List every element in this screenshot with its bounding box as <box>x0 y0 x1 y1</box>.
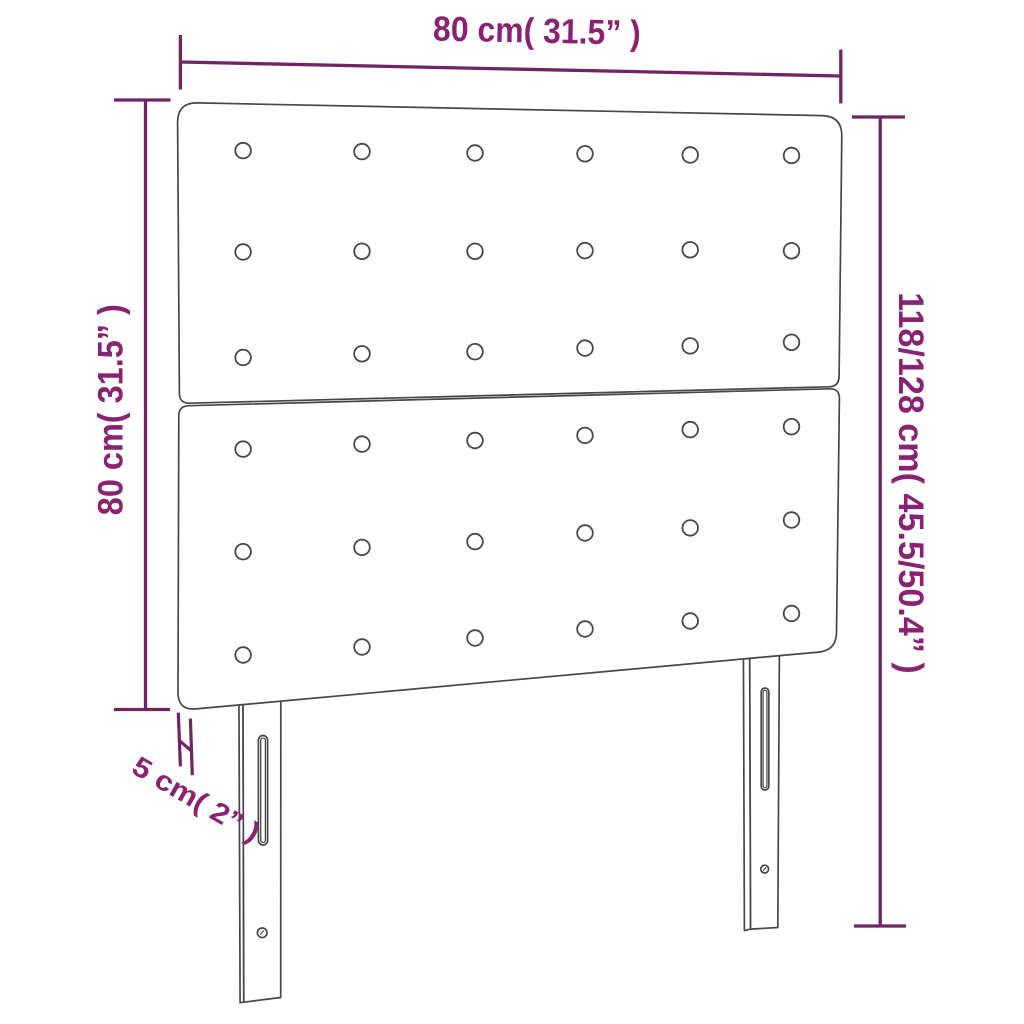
svg-text:118/128 cm( 45.5/50.4” ): 118/128 cm( 45.5/50.4” ) <box>891 292 931 674</box>
svg-text:80 cm( 31.5” ): 80 cm( 31.5” ) <box>433 10 642 53</box>
svg-text:80 cm( 31.5” ): 80 cm( 31.5” ) <box>92 304 131 515</box>
